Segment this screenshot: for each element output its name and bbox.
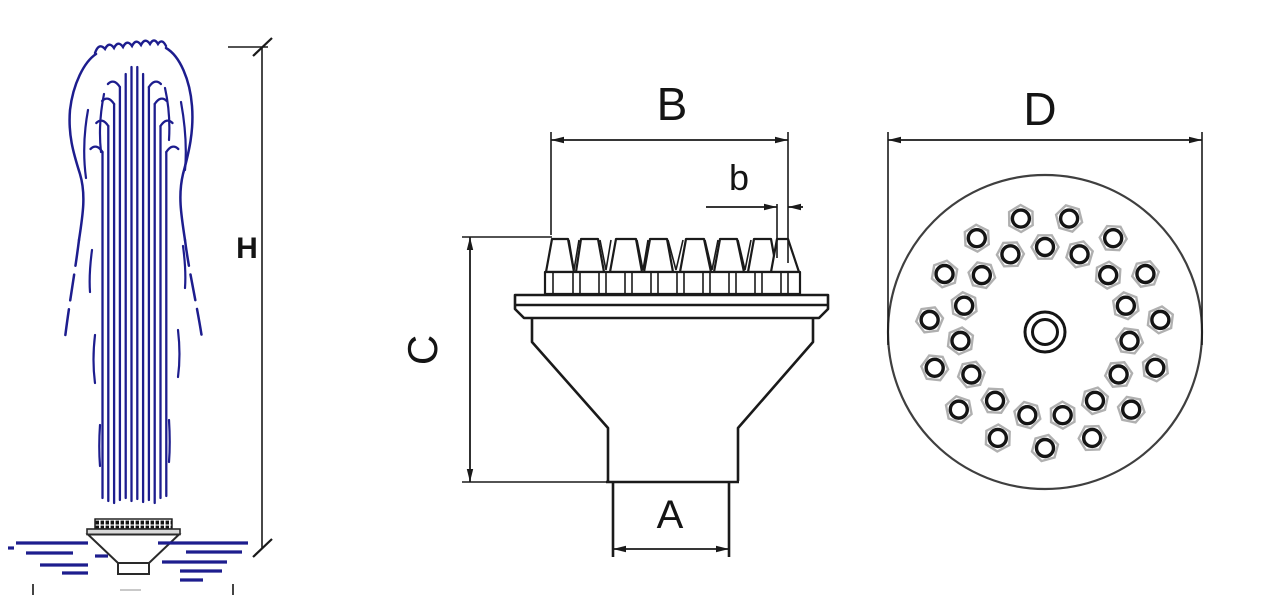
base-nozzle-row bbox=[95, 519, 172, 529]
dim-label-top-width: B bbox=[657, 78, 688, 130]
spray-arc bbox=[99, 425, 100, 466]
nozzle-hole bbox=[1096, 262, 1120, 289]
drawing-svg: H bbox=[0, 0, 1268, 609]
base-funnel bbox=[88, 535, 179, 564]
spray-envelope-right bbox=[166, 48, 192, 240]
nozzle-hole bbox=[1132, 261, 1159, 286]
spray-arc bbox=[94, 335, 96, 383]
base-pipe bbox=[118, 563, 149, 574]
spray-arc bbox=[183, 246, 185, 288]
nozzle-hole bbox=[1100, 226, 1127, 250]
spray-arc bbox=[84, 110, 88, 178]
nut-band bbox=[545, 272, 800, 294]
nozzle-hole bbox=[1105, 362, 1132, 386]
nozzle-hole bbox=[997, 242, 1024, 266]
top-view: D bbox=[888, 83, 1202, 489]
dim-label-body-height: C bbox=[399, 335, 446, 365]
nozzle-hole bbox=[986, 425, 1010, 452]
nozzle-hole bbox=[969, 262, 996, 288]
spray-arc bbox=[178, 330, 180, 377]
nozzle-hole bbox=[916, 307, 943, 332]
nozzle-hole bbox=[965, 225, 989, 252]
nozzle-hole bbox=[946, 396, 972, 423]
nozzle-hole bbox=[1116, 328, 1143, 353]
spray-envelope-right-lower bbox=[185, 240, 202, 338]
nozzle-hole bbox=[921, 356, 948, 381]
nozzle-hole bbox=[982, 389, 1009, 413]
nozzle-hole bbox=[948, 328, 973, 355]
nozzle-hole bbox=[1032, 235, 1059, 258]
spray-envelope-left-lower bbox=[65, 240, 79, 338]
nozzle-hole bbox=[1148, 307, 1173, 334]
dim-label-diameter: D bbox=[1023, 83, 1056, 135]
a-inlet-dimension: A bbox=[613, 493, 729, 549]
dim-label-height: H bbox=[236, 232, 258, 265]
funnel-body bbox=[532, 318, 813, 482]
spray-crest bbox=[95, 41, 166, 54]
dim-label-inlet-width: A bbox=[657, 493, 684, 537]
flange-plate bbox=[515, 295, 828, 318]
nozzle-hole bbox=[932, 261, 957, 288]
nozzle-hole bbox=[1079, 426, 1106, 450]
spray-arc bbox=[90, 250, 92, 292]
nozzle-hole bbox=[1113, 292, 1138, 319]
nozzle-hole bbox=[958, 362, 985, 387]
nozzle-hole bbox=[1143, 354, 1168, 381]
spray-arc bbox=[100, 94, 104, 152]
spray-arc bbox=[181, 102, 186, 170]
spray-arc bbox=[165, 88, 169, 140]
dim-label-tip-width: b bbox=[729, 157, 749, 198]
b-top-width-dimension: B bbox=[551, 78, 788, 263]
side-view: B b C A bbox=[399, 78, 828, 557]
spray-arc bbox=[169, 420, 170, 462]
nozzle-hole bbox=[952, 292, 977, 319]
nozzle-hole bbox=[1118, 397, 1145, 423]
fountain-spray-view: H bbox=[8, 38, 272, 595]
nozzle-hole bbox=[1051, 402, 1075, 429]
fountain-nozzle-drawing: H bbox=[0, 0, 1268, 609]
h-dimension: H bbox=[228, 38, 272, 557]
nozzle-hole bbox=[1009, 205, 1033, 232]
spray-streams bbox=[91, 67, 179, 503]
nozzle-base bbox=[87, 519, 180, 574]
